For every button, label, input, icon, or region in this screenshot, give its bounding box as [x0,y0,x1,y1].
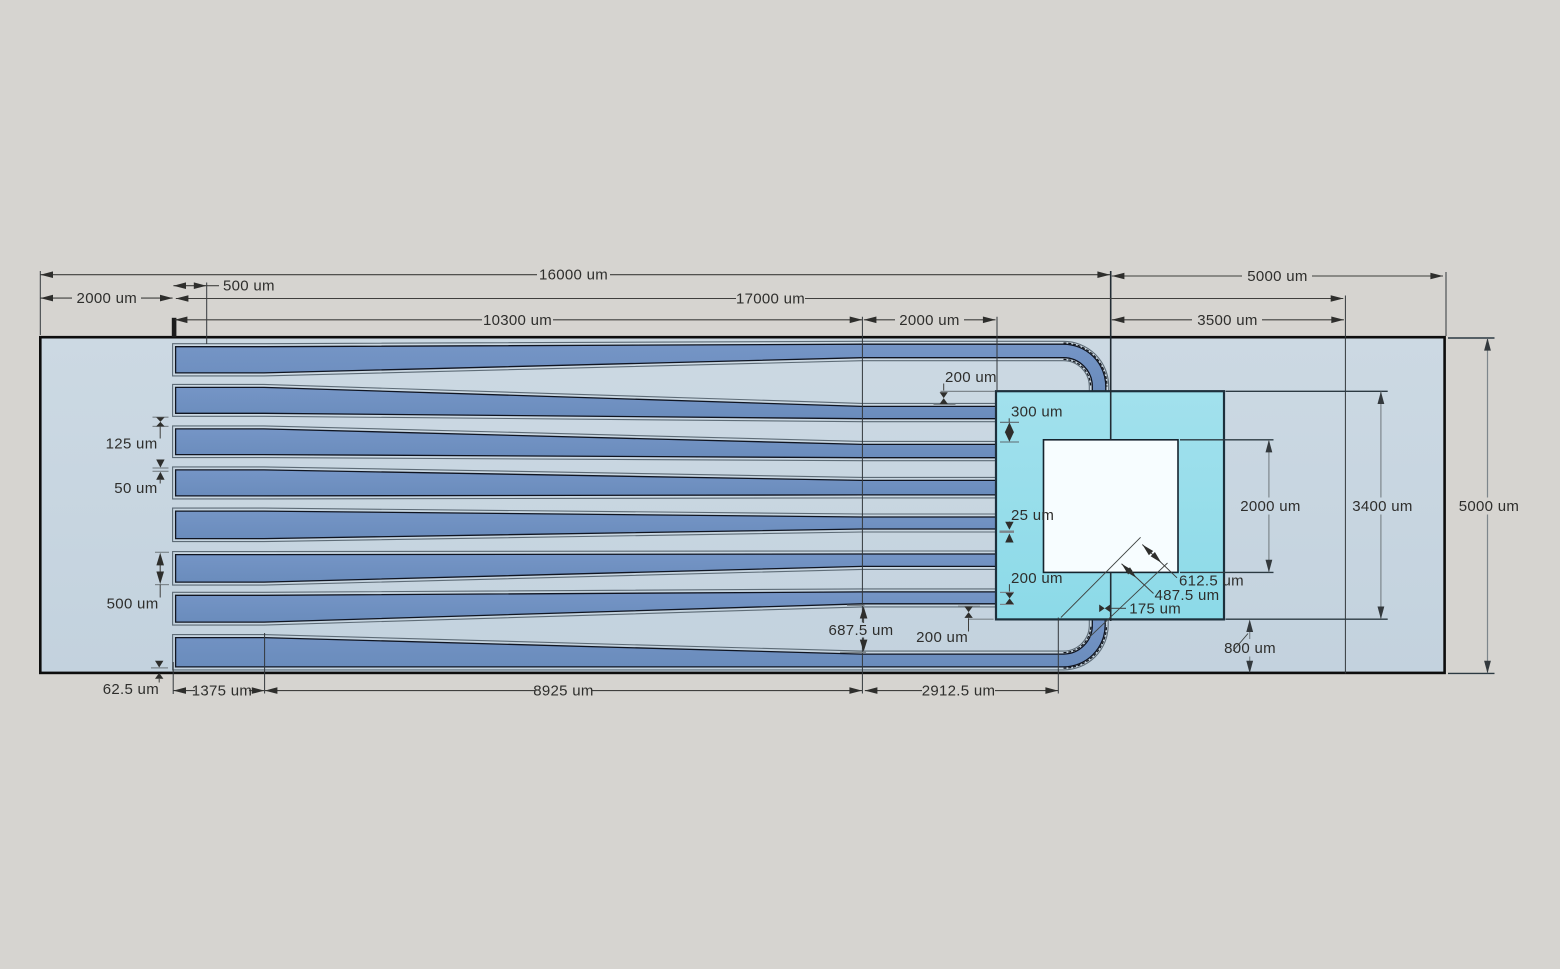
svg-text:16000 um: 16000 um [539,267,608,284]
svg-text:200 um: 200 um [1011,570,1063,587]
svg-text:2000 um: 2000 um [77,290,137,307]
svg-text:125 um: 125 um [106,436,158,453]
svg-text:500 um: 500 um [107,595,159,612]
svg-text:2912.5 um: 2912.5 um [922,683,996,700]
svg-text:3400 um: 3400 um [1352,498,1412,515]
svg-text:200 um: 200 um [916,629,968,646]
svg-text:2000 um: 2000 um [899,312,959,329]
svg-text:50 um: 50 um [114,480,157,497]
svg-text:800 um: 800 um [1224,640,1276,657]
svg-text:500 um: 500 um [223,278,275,295]
svg-text:3500 um: 3500 um [1197,312,1257,329]
svg-text:1375 um: 1375 um [192,683,252,700]
svg-text:25 um: 25 um [1011,507,1054,524]
svg-text:300 um: 300 um [1011,404,1063,421]
svg-text:687.5 um: 687.5 um [829,622,894,639]
svg-text:5000 um: 5000 um [1247,268,1307,285]
svg-text:200 um: 200 um [945,369,997,386]
svg-text:2000 um: 2000 um [1240,498,1300,515]
svg-text:10300 um: 10300 um [483,312,552,329]
svg-text:17000 um: 17000 um [736,291,805,308]
svg-text:62.5 um: 62.5 um [103,681,159,698]
svg-text:5000 um: 5000 um [1459,498,1519,515]
svg-text:487.5 um: 487.5 um [1155,587,1220,604]
svg-text:8925 um: 8925 um [533,683,593,700]
